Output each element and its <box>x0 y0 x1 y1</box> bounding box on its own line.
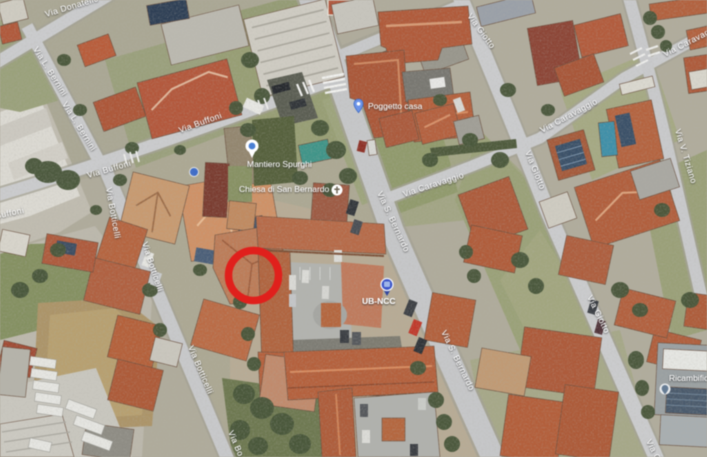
svg-text:Chiesa di San Bernardo: Chiesa di San Bernardo <box>239 184 330 194</box>
svg-text:UB-NCC: UB-NCC <box>362 296 396 306</box>
svg-text:Mantiero Spurghi: Mantiero Spurghi <box>247 159 312 169</box>
svg-text:Ricambificio G: Ricambificio G <box>669 373 707 383</box>
svg-text:Poggetto casa: Poggetto casa <box>368 101 423 111</box>
